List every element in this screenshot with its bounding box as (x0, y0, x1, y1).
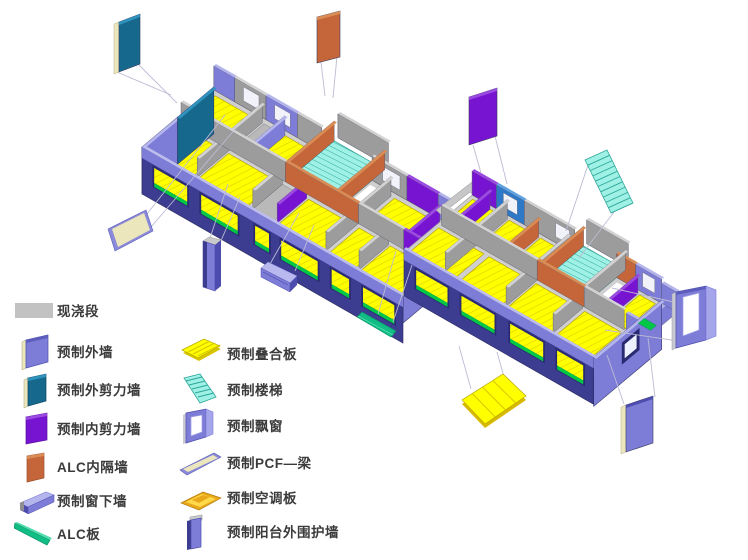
legend-item-alc-partition-wall: ALC内隔墙 (14, 447, 128, 485)
legend-label: 预制窗下墙 (57, 490, 127, 510)
callout-precast-exterior-shear-wall (114, 14, 140, 74)
legend-label: 预制楼梯 (227, 379, 283, 399)
diagram-canvas: 现浇段 预制外墙 预制外剪力墙 预制内剪力墙 (0, 0, 748, 560)
alc-board-icon (14, 514, 57, 552)
precast-exterior-shear-wall-icon (14, 370, 57, 408)
callout-precast-composite-slab (462, 374, 526, 428)
legend-item-precast-interior-shear-wall: 预制内剪力墙 (14, 409, 141, 447)
precast-composite-slab-icon (176, 334, 227, 372)
legend-label: ALC内隔墙 (57, 456, 128, 476)
callout-precast-exterior-wall (621, 396, 653, 454)
callout-precast-balcony-enclosure-wall (203, 237, 221, 291)
precast-balcony-enclosure-wall-icon (176, 512, 227, 550)
legend-label: 预制叠合板 (227, 343, 297, 363)
cast-in-place-segment-icon (14, 291, 57, 329)
callout-precast-bay-window (672, 286, 716, 350)
precast-interior-shear-wall-icon (14, 409, 57, 447)
legend-item-cast-in-place-segment: 现浇段 (14, 291, 99, 329)
precast-exterior-wall-icon (14, 332, 57, 370)
legend-item-precast-balcony-enclosure-wall: 预制阳台外围护墙 (176, 512, 339, 550)
legend-label: 预制空调板 (227, 487, 297, 507)
legend-label: 预制阳台外围护墙 (227, 521, 339, 541)
callout-alc-partition-wall (317, 11, 340, 63)
precast-stair-icon (176, 370, 227, 408)
legend-label: 预制飘窗 (227, 415, 283, 435)
legend-label: 预制外墙 (57, 341, 113, 361)
legend-item-precast-composite-slab: 预制叠合板 (176, 334, 297, 372)
alc-partition-wall-icon (14, 447, 57, 485)
legend-label: ALC板 (57, 523, 100, 543)
legend-item-precast-bay-window: 预制飘窗 (176, 406, 283, 444)
legend-item-precast-pcf-beam: 预制PCF—梁 (176, 443, 312, 481)
legend-label: 预制外剪力墙 (57, 379, 141, 399)
legend-item-precast-stair: 预制楼梯 (176, 370, 283, 408)
precast-bay-window-icon (176, 406, 227, 444)
callout-precast-interior-shear-wall (469, 88, 497, 145)
legend-label: 预制PCF—梁 (227, 452, 312, 472)
legend-item-precast-exterior-shear-wall: 预制外剪力墙 (14, 370, 141, 408)
callout-precast-pcf-beam (108, 210, 153, 251)
precast-ac-panel-icon (176, 478, 227, 516)
callout-precast-stair (585, 150, 633, 213)
legend-label: 预制内剪力墙 (57, 418, 141, 438)
legend-item-alc-board: ALC板 (14, 514, 100, 552)
legend-item-precast-ac-panel: 预制空调板 (176, 478, 297, 516)
legend-label: 现浇段 (57, 300, 99, 320)
building-wing-right (404, 169, 680, 406)
legend-item-precast-exterior-wall: 预制外墙 (14, 332, 113, 370)
precast-pcf-beam-icon (176, 443, 227, 481)
